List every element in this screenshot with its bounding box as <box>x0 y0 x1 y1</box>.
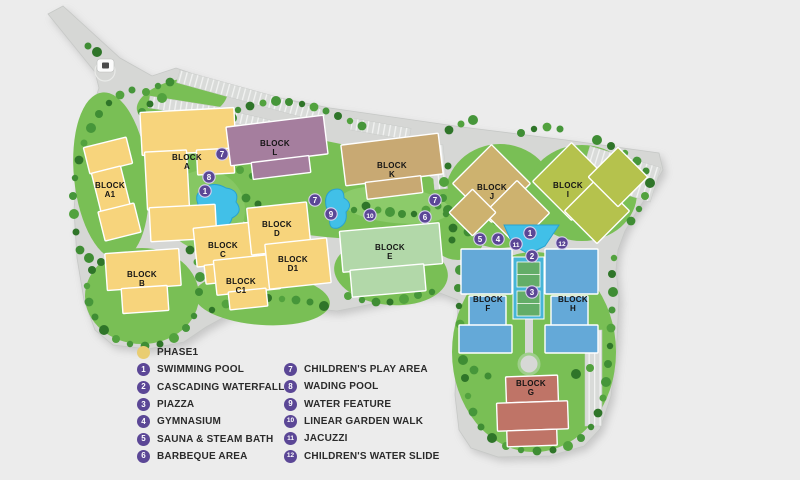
tree <box>169 333 179 343</box>
tree <box>127 341 133 347</box>
tree <box>84 253 94 263</box>
tree <box>533 447 542 456</box>
block-G-building <box>497 401 569 431</box>
tree <box>641 192 649 200</box>
legend-label-4: GYMNASIUM <box>157 416 221 427</box>
legend-item-6: 6BARBEQUE AREA <box>137 448 285 465</box>
tree <box>195 288 203 296</box>
svg-text:10: 10 <box>366 213 374 220</box>
legend-item-7: 7CHILDREN'S PLAY AREA <box>284 361 439 378</box>
tree <box>600 395 607 402</box>
tree <box>195 272 205 282</box>
svg-text:7: 7 <box>220 150 225 159</box>
tree <box>155 83 161 89</box>
tree <box>112 335 120 343</box>
legend-item-2: 2CASCADING WATERFALL <box>137 379 285 396</box>
tree <box>517 129 525 137</box>
tree <box>236 166 244 174</box>
tree <box>319 301 329 311</box>
tree <box>445 163 452 170</box>
tree <box>465 393 471 399</box>
tree <box>470 366 479 375</box>
map-marker-5: 5 <box>474 233 486 245</box>
legend-item-10: 10LINEAR GARDEN WALK <box>284 413 439 430</box>
map-marker-4: 4 <box>492 233 504 245</box>
tree <box>75 156 84 165</box>
phase1-label: PHASE1 <box>157 347 198 358</box>
legend-item-9: 9WATER FEATURE <box>284 396 439 413</box>
tree <box>563 441 573 451</box>
tree <box>399 294 409 304</box>
map-marker-12: 12 <box>556 237 568 249</box>
tree <box>607 343 613 349</box>
tree <box>246 102 255 111</box>
tree <box>76 246 85 255</box>
map-marker-7: 7 <box>216 148 228 160</box>
tree <box>456 303 462 309</box>
tree <box>645 178 655 188</box>
svg-text:2: 2 <box>530 252 535 261</box>
tree <box>550 447 557 454</box>
tree <box>557 126 564 133</box>
legend-badge-1: 1 <box>137 363 150 376</box>
map-marker-6: 6 <box>419 211 431 223</box>
legend-label-3: PIAZZA <box>157 399 194 410</box>
tree <box>439 177 449 187</box>
legend-label-7: CHILDREN'S PLAY AREA <box>304 364 428 375</box>
tree <box>86 123 96 133</box>
tree <box>586 364 594 372</box>
tree <box>487 433 497 443</box>
svg-text:7: 7 <box>433 196 438 205</box>
svg-text:1: 1 <box>528 229 533 238</box>
tree <box>468 115 478 125</box>
tree <box>129 87 136 94</box>
legend-label-6: BARBEQUE AREA <box>157 451 248 462</box>
site-plan: BLOCKABLOCKA1BLOCKBBLOCKCBLOCKC1BLOCKDBL… <box>0 0 800 480</box>
block-C1-building <box>228 288 268 310</box>
tree <box>72 175 78 181</box>
legend-label-1: SWIMMING POOL <box>157 364 244 375</box>
tree <box>461 374 469 382</box>
tree <box>92 314 99 321</box>
svg-text:9: 9 <box>329 210 334 219</box>
legend-label-9: WATER FEATURE <box>304 399 391 410</box>
map-marker-9: 9 <box>325 208 337 220</box>
legend-badge-2: 2 <box>137 381 150 394</box>
tree <box>285 98 293 106</box>
map-marker-1: 1 <box>524 227 536 239</box>
tree <box>147 101 154 108</box>
tree <box>95 110 103 118</box>
tree <box>81 140 88 147</box>
tree <box>334 112 342 120</box>
tree <box>166 78 175 87</box>
legend-badge-8: 8 <box>284 380 297 393</box>
legend-label-12: CHILDREN'S WATER SLIDE <box>304 451 439 462</box>
legend-label-5: SAUNA & STEAM BATH <box>157 434 273 445</box>
block-F-building <box>459 325 512 353</box>
svg-text:6: 6 <box>423 213 428 222</box>
gate-icon-glyph <box>102 63 109 69</box>
block-H-building <box>545 249 598 294</box>
tree <box>571 369 581 379</box>
tree <box>157 93 167 103</box>
tree <box>636 206 642 212</box>
tree <box>445 126 454 135</box>
tree <box>307 299 314 306</box>
tree <box>69 192 77 200</box>
tree <box>387 299 394 306</box>
block-G-building <box>507 429 558 447</box>
tree <box>323 108 330 115</box>
legend-badge-10: 10 <box>284 415 297 428</box>
tree <box>449 237 456 244</box>
svg-text:3: 3 <box>530 288 535 297</box>
legend-column-left: PHASE1 1SWIMMING POOL2CASCADING WATERFAL… <box>137 344 285 465</box>
tree <box>398 210 406 218</box>
tree <box>627 217 636 226</box>
tree <box>344 292 352 300</box>
block-B-building <box>121 285 169 313</box>
tree <box>611 255 617 261</box>
tree <box>469 408 478 417</box>
tree <box>607 324 616 333</box>
tree <box>372 298 381 307</box>
svg-text:8: 8 <box>207 173 212 182</box>
block-H-building <box>545 325 598 353</box>
map-marker-1: 1 <box>199 185 211 197</box>
tree <box>608 270 616 278</box>
tree <box>458 121 465 128</box>
tree <box>588 424 594 430</box>
tree <box>69 209 79 219</box>
tree <box>592 135 602 145</box>
tree <box>99 325 109 335</box>
legend-badge-11: 11 <box>284 432 297 445</box>
tree <box>191 313 197 319</box>
tree <box>577 434 585 442</box>
svg-text:5: 5 <box>478 235 483 244</box>
tree <box>182 324 190 332</box>
svg-text:12: 12 <box>558 241 566 248</box>
block-E-building <box>350 264 426 297</box>
block-F-building <box>461 249 512 294</box>
legend-label-11: JACUZZI <box>304 433 348 444</box>
legend-column-right: 7CHILDREN'S PLAY AREA8WADING POOL9WATER … <box>284 361 439 465</box>
tree <box>604 360 612 368</box>
tree <box>478 424 485 431</box>
tree <box>518 447 524 453</box>
tree <box>607 142 615 150</box>
legend-item-4: 4GYMNASIUM <box>137 413 285 430</box>
tree <box>608 287 618 297</box>
tree <box>601 377 611 387</box>
legend-item-12: 12CHILDREN'S WATER SLIDE <box>284 447 439 464</box>
map-marker-3: 3 <box>526 286 538 298</box>
tree <box>271 96 281 106</box>
legend-badge-5: 5 <box>137 433 150 446</box>
tree <box>235 107 241 113</box>
tree <box>351 207 357 213</box>
tree <box>84 283 90 289</box>
tree <box>92 47 102 57</box>
legend-item-8: 8WADING POOL <box>284 378 439 395</box>
map-marker-8: 8 <box>203 171 215 183</box>
tree <box>85 298 94 307</box>
phase1-dot <box>137 346 150 359</box>
tree <box>458 355 468 365</box>
map-marker-2: 2 <box>526 250 538 262</box>
tree <box>97 258 105 266</box>
tree <box>106 100 112 106</box>
legend-item-5: 5SAUNA & STEAM BATH <box>137 430 285 447</box>
legend-badge-4: 4 <box>137 415 150 428</box>
legend-badge-7: 7 <box>284 363 297 376</box>
tree <box>85 43 92 50</box>
legend-item-11: 11JACUZZI <box>284 430 439 447</box>
tree <box>411 211 417 217</box>
legend-badge-6: 6 <box>137 450 150 463</box>
tree <box>242 194 251 203</box>
map-marker-11: 11 <box>510 238 522 250</box>
plaza-circle <box>519 354 539 374</box>
tree <box>186 246 195 255</box>
tree <box>209 307 215 313</box>
tree <box>359 297 365 303</box>
tree <box>116 91 125 100</box>
map-marker-7: 7 <box>309 194 321 206</box>
garden-walkway <box>525 319 533 357</box>
tree <box>429 289 435 295</box>
legend-badge-12: 12 <box>284 450 297 463</box>
legend-item-1: 1SWIMMING POOL <box>137 361 285 378</box>
svg-text:1: 1 <box>203 187 208 196</box>
tree <box>385 207 395 217</box>
tree <box>485 373 492 380</box>
tree <box>292 296 301 305</box>
tree <box>609 307 616 314</box>
legend-phase: PHASE1 <box>137 344 285 361</box>
legend-badge-3: 3 <box>137 398 150 411</box>
tree <box>358 122 367 131</box>
map-marker-10: 10 <box>364 209 376 221</box>
legend-label-2: CASCADING WATERFALL <box>157 382 285 393</box>
tree <box>449 224 458 233</box>
tree <box>443 211 449 217</box>
svg-text:11: 11 <box>513 242 520 249</box>
tree <box>279 296 285 302</box>
tree <box>310 103 319 112</box>
tree <box>299 101 305 107</box>
tree <box>260 100 267 107</box>
tree <box>531 126 537 132</box>
tree <box>543 123 552 132</box>
map-marker-7: 7 <box>429 194 441 206</box>
svg-text:7: 7 <box>313 196 318 205</box>
tree <box>142 88 150 96</box>
legend-item-3: 3PIAZZA <box>137 396 285 413</box>
tree <box>88 266 96 274</box>
tree <box>347 118 353 124</box>
legend-label-10: LINEAR GARDEN WALK <box>304 416 423 427</box>
svg-text:4: 4 <box>496 235 501 244</box>
legend-badge-9: 9 <box>284 398 297 411</box>
tree <box>594 409 603 418</box>
legend-label-8: WADING POOL <box>304 381 378 392</box>
tree <box>73 229 80 236</box>
